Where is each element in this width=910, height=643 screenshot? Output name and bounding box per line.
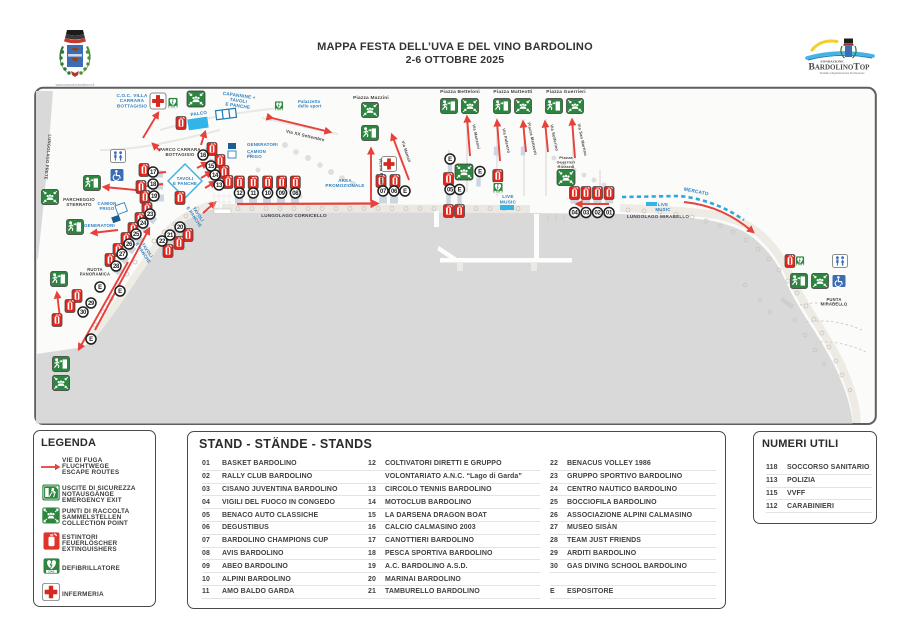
svg-text:25: 25 — [133, 232, 140, 238]
svg-text:E: E — [98, 285, 102, 291]
svg-text:CAMIONFRIGO: CAMIONFRIGO — [97, 201, 116, 211]
svg-text:27: 27 — [119, 252, 126, 258]
svg-text:12: 12 — [236, 191, 243, 197]
svg-text:17: 17 — [150, 170, 157, 176]
svg-text:C.O.C. VILLACARRARABOTTAGISIO: C.O.C. VILLACARRARABOTTAGISIO — [117, 93, 148, 108]
svg-text:Piazza Betteloni: Piazza Betteloni — [440, 89, 480, 95]
svg-text:GENERATORI: GENERATORI — [84, 223, 115, 228]
svg-text:E: E — [118, 289, 122, 295]
svg-text:Turismo Organizzazione Promozi: Turismo Organizzazione Promozione — [820, 71, 865, 75]
svg-text:19: 19 — [151, 194, 158, 200]
svg-text:E: E — [403, 189, 407, 195]
svg-text:01: 01 — [606, 211, 613, 217]
svg-text:Piazza Guerrieri: Piazza Guerrieri — [546, 89, 585, 95]
svg-text:22: 22 — [159, 239, 166, 245]
svg-text:E: E — [89, 337, 93, 343]
svg-text:Piazza Mazzini: Piazza Mazzini — [353, 95, 389, 101]
svg-text:21: 21 — [167, 233, 174, 239]
svg-text:03: 03 — [583, 211, 590, 217]
svg-text:04: 04 — [571, 211, 578, 217]
svg-text:06: 06 — [391, 189, 398, 195]
svg-text:LUNGOLAGO MIRABELLO: LUNGOLAGO MIRABELLO — [627, 214, 689, 219]
svg-text:09: 09 — [279, 191, 286, 197]
svg-text:DAE: DAE — [496, 191, 501, 194]
svg-text:26: 26 — [126, 242, 133, 248]
svg-text:23: 23 — [147, 212, 154, 218]
svg-text:11: 11 — [250, 191, 257, 197]
svg-text:24: 24 — [140, 221, 147, 227]
svg-text:18: 18 — [150, 182, 157, 188]
svg-text:02: 02 — [594, 211, 601, 217]
svg-text:E: E — [478, 170, 482, 176]
svg-text:E: E — [458, 188, 462, 194]
svg-text:Piazza Matteotti: Piazza Matteotti — [493, 89, 532, 95]
svg-text:PARCHEGGIOSTERRATO: PARCHEGGIOSTERRATO — [63, 197, 95, 207]
svg-text:PiazzaGuerrieriRizzardi: PiazzaGuerrieriRizzardi — [557, 155, 576, 169]
svg-text:Palazzettodello sport: Palazzettodello sport — [298, 99, 322, 109]
svg-text:DAE: DAE — [171, 106, 176, 109]
svg-text:13: 13 — [216, 183, 223, 189]
svg-text:LUNGOLAGO CORNICELLO: LUNGOLAGO CORNICELLO — [261, 213, 327, 218]
svg-text:15: 15 — [208, 164, 215, 170]
svg-text:16: 16 — [200, 153, 207, 159]
svg-text:10: 10 — [265, 191, 272, 197]
svg-text:DAE: DAE — [48, 570, 54, 574]
svg-text:20: 20 — [177, 225, 184, 231]
svg-text:E: E — [448, 157, 452, 163]
svg-text:08: 08 — [292, 191, 299, 197]
svg-text:05: 05 — [447, 188, 454, 194]
svg-text:28: 28 — [113, 264, 120, 270]
svg-text:14: 14 — [212, 173, 219, 179]
svg-text:GENERATORI: GENERATORI — [247, 142, 278, 147]
svg-text:29: 29 — [88, 301, 95, 307]
svg-text:07: 07 — [380, 189, 387, 195]
svg-text:30: 30 — [80, 310, 87, 316]
